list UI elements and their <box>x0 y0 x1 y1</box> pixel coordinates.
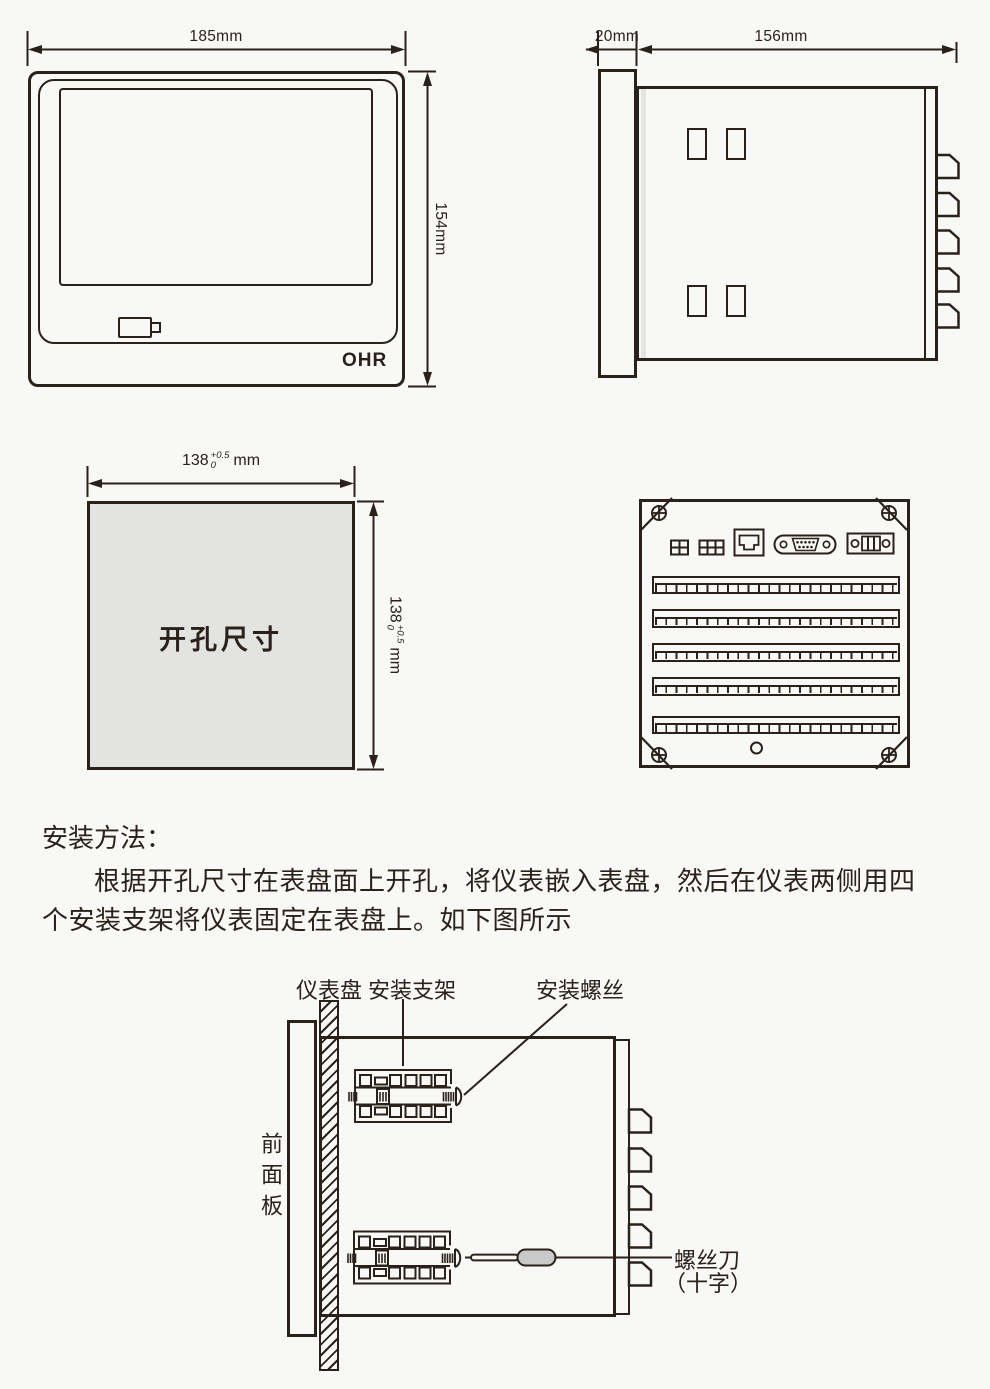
mount-front-panel <box>287 1020 317 1337</box>
install-paragraph-line2: 个安装支架将仪表固定在表盘上。如下图所示 <box>42 901 572 940</box>
usb-slot-tab <box>150 322 161 333</box>
side-terminal-teeth <box>937 155 959 328</box>
screw-label: 安装螺丝 <box>536 973 624 1005</box>
mount-panel-wall <box>319 1000 339 1371</box>
terminal-strip <box>652 576 900 595</box>
brand-logo: OHR <box>342 350 387 372</box>
usb-slot <box>118 317 152 338</box>
side-depth-label: 156mm <box>721 28 841 46</box>
install-heading: 安装方法： <box>42 818 172 855</box>
install-paragraph-line1: 根据开孔尺寸在表盘面上开孔，将仪表嵌入表盘，然后在仪表两侧用四 <box>42 862 916 901</box>
side-vent-hole <box>726 128 746 160</box>
mount-body <box>319 1036 617 1317</box>
datasheet-page: OHR 185mm 154mm 20mm 156mm 138+0.50mm 开孔… <box>0 0 990 1389</box>
side-vent-hole <box>687 128 707 160</box>
terminal-strip <box>652 643 900 662</box>
side-view-bezel <box>598 69 637 378</box>
cutout-width-label: 138+0.50mm <box>151 453 291 472</box>
side-vent-hole <box>726 285 746 317</box>
cutout-label: 开孔尺寸 <box>87 618 355 657</box>
side-view-terminal-strip-line <box>924 89 927 359</box>
cutout-height-label: 138+0.50mm <box>384 596 403 674</box>
terminal-strip <box>652 677 900 696</box>
mount-terminal-strip <box>614 1039 630 1315</box>
side-vent-hole <box>687 285 707 317</box>
front-panel-label: 前面板 <box>254 1132 286 1225</box>
front-height-label: 154mm <box>431 202 449 255</box>
terminal-strip <box>652 716 900 735</box>
side-bezel-label: 20mm <box>587 28 647 46</box>
front-view-screen <box>59 88 373 286</box>
bracket-label: 安装支架 <box>368 973 456 1005</box>
terminal-strip <box>652 609 900 628</box>
front-width-label: 185mm <box>156 28 276 46</box>
mount-terminal-teeth <box>629 1110 651 1286</box>
side-view-body <box>636 86 938 361</box>
screwdriver-type-label: （十字） <box>664 1266 752 1298</box>
